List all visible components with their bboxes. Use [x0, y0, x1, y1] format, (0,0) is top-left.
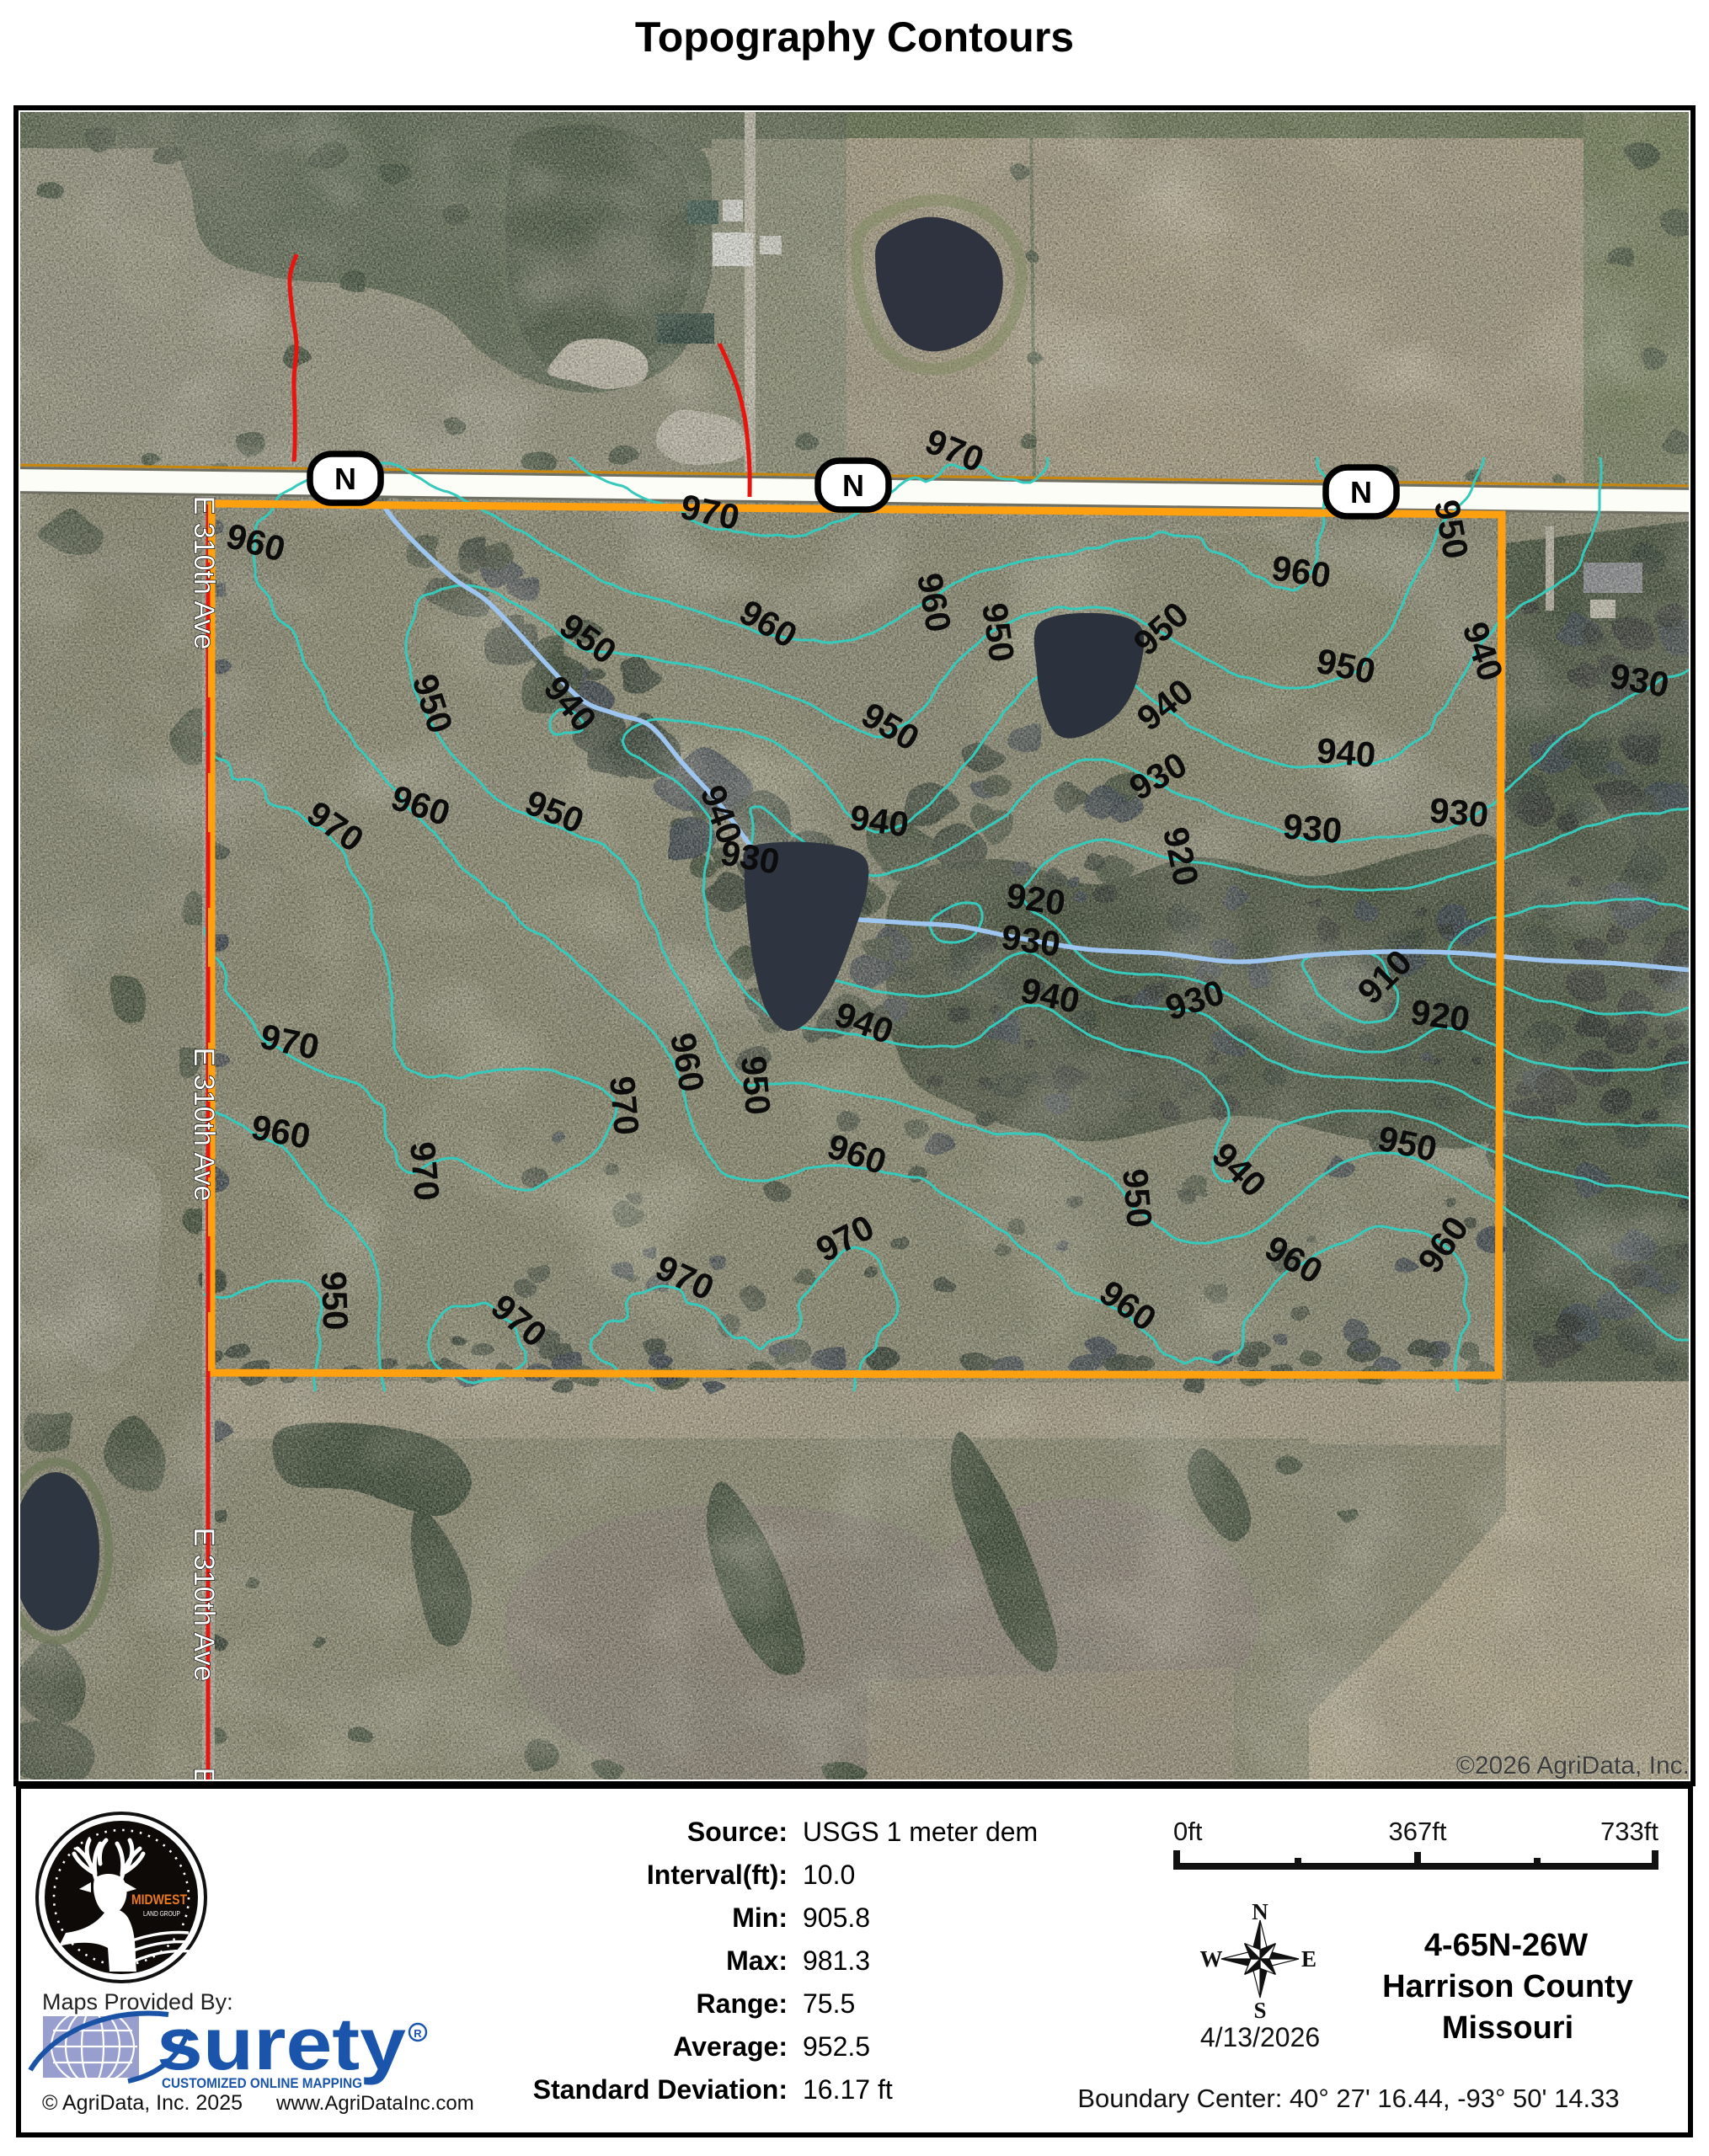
- svg-text:930: 930: [1281, 806, 1343, 851]
- svg-text:Harrison County: Harrison County: [1382, 1969, 1633, 2004]
- svg-text:10.0: 10.0: [803, 1860, 855, 1890]
- svg-text:©2026 AgriData, Inc.: ©2026 AgriData, Inc.: [1456, 1752, 1690, 1780]
- svg-text:0ft: 0ft: [1173, 1817, 1203, 1846]
- svg-text:940: 940: [1315, 730, 1377, 775]
- svg-text:Range:: Range:: [697, 1988, 788, 2019]
- svg-text:www.AgriDataInc.com: www.AgriDataInc.com: [275, 2092, 474, 2115]
- svg-text:S: S: [1253, 1998, 1266, 2023]
- svg-text:Maps Provided By:: Maps Provided By:: [42, 1989, 233, 2015]
- svg-text:940: 940: [847, 797, 911, 844]
- svg-text:CUSTOMIZED ONLINE MAPPING: CUSTOMIZED ONLINE MAPPING: [162, 2075, 362, 2091]
- svg-text:MIDWEST: MIDWEST: [131, 1892, 187, 1908]
- svg-text:USGS 1 meter dem: USGS 1 meter dem: [803, 1817, 1038, 1847]
- svg-text:950: 950: [975, 600, 1022, 664]
- svg-text:N: N: [334, 462, 356, 496]
- svg-text:950: 950: [1115, 1167, 1160, 1230]
- svg-text:950: 950: [734, 1054, 778, 1117]
- svg-text:LAND GROUP: LAND GROUP: [143, 1910, 180, 1918]
- svg-text:Min:: Min:: [732, 1903, 788, 1933]
- svg-text:Standard Deviation:: Standard Deviation:: [533, 2074, 788, 2105]
- svg-text:970: 970: [602, 1075, 647, 1137]
- svg-text:930: 930: [1428, 790, 1490, 835]
- svg-text:Max:: Max:: [726, 1945, 788, 1976]
- svg-text:950: 950: [314, 1271, 355, 1331]
- svg-text:Source:: Source:: [687, 1817, 788, 1847]
- svg-text:E 310th Ave: E 310th Ave: [188, 496, 220, 650]
- svg-text:Boundary Center: 40° 27' 16.44: Boundary Center: 40° 27' 16.44, -93° 50'…: [1077, 2084, 1619, 2113]
- svg-text:733ft: 733ft: [1600, 1817, 1658, 1846]
- svg-text:Interval(ft):: Interval(ft):: [647, 1860, 788, 1890]
- svg-text:16.17 ft: 16.17 ft: [803, 2074, 893, 2105]
- svg-text:Missouri: Missouri: [1442, 2010, 1573, 2046]
- svg-text:E: E: [1301, 1946, 1316, 1972]
- svg-text:4-65N-26W: 4-65N-26W: [1424, 1928, 1588, 1963]
- svg-text:R: R: [414, 2027, 422, 2040]
- svg-text:E 310th Ave: E 310th Ave: [188, 1048, 220, 1202]
- svg-text:W: W: [1200, 1946, 1223, 1972]
- svg-text:75.5: 75.5: [803, 1988, 855, 2019]
- svg-text:Average:: Average:: [673, 2031, 788, 2062]
- svg-text:367ft: 367ft: [1389, 1817, 1447, 1846]
- svg-text:981.3: 981.3: [803, 1945, 870, 1976]
- svg-text:N: N: [842, 468, 864, 503]
- svg-text:© AgriData, Inc. 2025: © AgriData, Inc. 2025: [42, 2091, 243, 2115]
- svg-text:930: 930: [999, 916, 1063, 963]
- svg-text:4/13/2026: 4/13/2026: [1200, 2022, 1320, 2052]
- svg-text:E 310th Ave: E 310th Ave: [188, 1528, 220, 1682]
- svg-text:N: N: [1252, 1899, 1268, 1924]
- svg-text:905.8: 905.8: [803, 1903, 870, 1933]
- svg-text:970: 970: [403, 1140, 447, 1203]
- svg-text:920: 920: [1408, 991, 1472, 1038]
- svg-text:952.5: 952.5: [803, 2031, 870, 2062]
- svg-text:960: 960: [1269, 547, 1333, 595]
- svg-text:920: 920: [1004, 875, 1068, 922]
- svg-text:N: N: [1350, 475, 1372, 510]
